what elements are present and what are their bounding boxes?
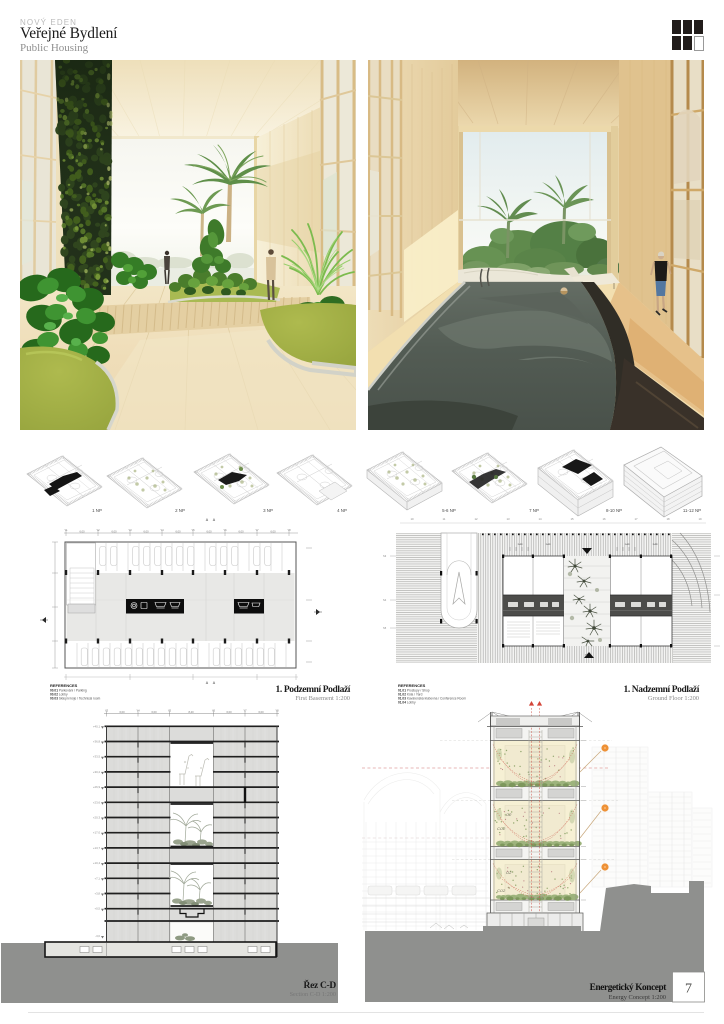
svg-text:Y3: Y3 — [128, 528, 132, 532]
svg-text:6,00: 6,00 — [238, 530, 244, 534]
svg-text:Y3: Y3 — [105, 709, 109, 713]
svg-text:O2: O2 — [506, 812, 512, 817]
svg-text:11: 11 — [443, 517, 446, 521]
svg-text:Y1: Y1 — [64, 528, 68, 532]
svg-text:Section C-D 1:200: Section C-D 1:200 — [290, 991, 336, 998]
svg-text:8,40: 8,40 — [188, 710, 194, 714]
svg-text:7 NP: 7 NP — [529, 508, 539, 513]
svg-text:6,00: 6,00 — [226, 710, 232, 714]
svg-text:Y6: Y6 — [223, 528, 227, 532]
svg-text:6,00: 6,00 — [119, 710, 125, 714]
svg-text:Energetický Koncept: Energetický Koncept — [590, 983, 668, 993]
svg-text:8-10 NP: 8-10 NP — [606, 508, 622, 513]
svg-text:A: A — [206, 681, 209, 685]
svg-text:6,00: 6,00 — [143, 530, 149, 534]
svg-text:Energy Concept 1:200: Energy Concept 1:200 — [609, 994, 666, 1001]
svg-text:6,00: 6,00 — [111, 530, 117, 534]
svg-text:2 NP: 2 NP — [175, 508, 185, 513]
svg-text:15: 15 — [570, 517, 574, 521]
svg-text:17: 17 — [634, 517, 638, 521]
svg-text:11-12 NP: 11-12 NP — [683, 508, 701, 513]
svg-text:Y6: Y6 — [212, 709, 216, 713]
svg-text:6,00: 6,00 — [270, 530, 276, 534]
svg-text:1+kk: 1+kk — [652, 543, 658, 546]
svg-text:+20,3: +20,3 — [93, 816, 101, 820]
svg-text:REFERENCES: REFERENCES — [50, 683, 78, 688]
svg-text:Y5: Y5 — [168, 709, 172, 713]
svg-text:3 NP: 3 NP — [263, 508, 273, 513]
svg-text:12: 12 — [474, 517, 478, 521]
svg-text:5-6 NP: 5-6 NP — [442, 508, 456, 513]
svg-text:+33,5: +33,5 — [93, 755, 101, 759]
svg-text:1+kk: 1+kk — [517, 543, 523, 546]
svg-text:+10,4: +10,4 — [93, 861, 101, 865]
svg-text:1. Nadzemní Podlaží: 1. Nadzemní Podlaží — [623, 685, 699, 695]
svg-text:6,00: 6,00 — [79, 530, 85, 534]
svg-text:Y7: Y7 — [255, 528, 259, 532]
svg-text:+36,8: +36,8 — [93, 740, 101, 744]
svg-text:-3,0: -3,0 — [95, 934, 100, 938]
svg-text:1 NP: 1 NP — [92, 508, 102, 513]
svg-text:18: 18 — [666, 517, 670, 521]
svg-text:4 NP: 4 NP — [337, 508, 347, 513]
svg-text:Y7: Y7 — [243, 709, 247, 713]
svg-text:S5: S5 — [383, 626, 387, 630]
svg-text:1. Podzemní Podlaží: 1. Podzemní Podlaží — [276, 685, 351, 695]
svg-text:Y8: Y8 — [287, 528, 291, 532]
svg-text:O2: O2 — [506, 870, 512, 875]
svg-text:+7,1: +7,1 — [94, 876, 100, 880]
svg-text:16: 16 — [602, 517, 606, 521]
svg-text:13: 13 — [506, 517, 510, 521]
svg-text:1+kk: 1+kk — [545, 543, 551, 546]
svg-text:19: 19 — [698, 517, 702, 521]
svg-text:10: 10 — [410, 517, 414, 521]
svg-text:S3: S3 — [383, 554, 387, 558]
svg-text:+40,1: +40,1 — [93, 724, 101, 728]
svg-text:+26,9: +26,9 — [93, 785, 101, 789]
svg-text:+17,0: +17,0 — [93, 831, 101, 835]
svg-text:Y5: Y5 — [191, 528, 195, 532]
svg-text:6,00: 6,00 — [258, 710, 264, 714]
svg-text:Řez C-D: Řez C-D — [304, 979, 337, 991]
svg-text:A: A — [213, 681, 216, 685]
svg-text:+30,2: +30,2 — [93, 770, 101, 774]
svg-text:CO2: CO2 — [497, 888, 506, 893]
svg-text:Y4: Y4 — [136, 709, 140, 713]
svg-text:1+kk: 1+kk — [624, 543, 630, 546]
svg-text:+13,7: +13,7 — [93, 846, 101, 850]
svg-text:Y2: Y2 — [96, 528, 100, 532]
svg-text:7: 7 — [685, 982, 692, 997]
svg-text:REFERENCES: REFERENCES — [398, 683, 426, 688]
svg-text:+0,5: +0,5 — [94, 907, 100, 911]
svg-text:S4: S4 — [383, 598, 387, 602]
svg-text:CO2: CO2 — [497, 826, 506, 831]
svg-text:6,00: 6,00 — [175, 530, 181, 534]
svg-text:6,00: 6,00 — [206, 530, 212, 534]
svg-text:Y8: Y8 — [275, 709, 279, 713]
svg-text:14: 14 — [538, 517, 542, 521]
svg-text:6,00: 6,00 — [151, 710, 157, 714]
svg-text:B: B — [585, 653, 587, 657]
svg-text:+23,6: +23,6 — [93, 800, 101, 804]
svg-text:Y4: Y4 — [160, 528, 164, 532]
svg-text:+3,8: +3,8 — [94, 892, 100, 896]
